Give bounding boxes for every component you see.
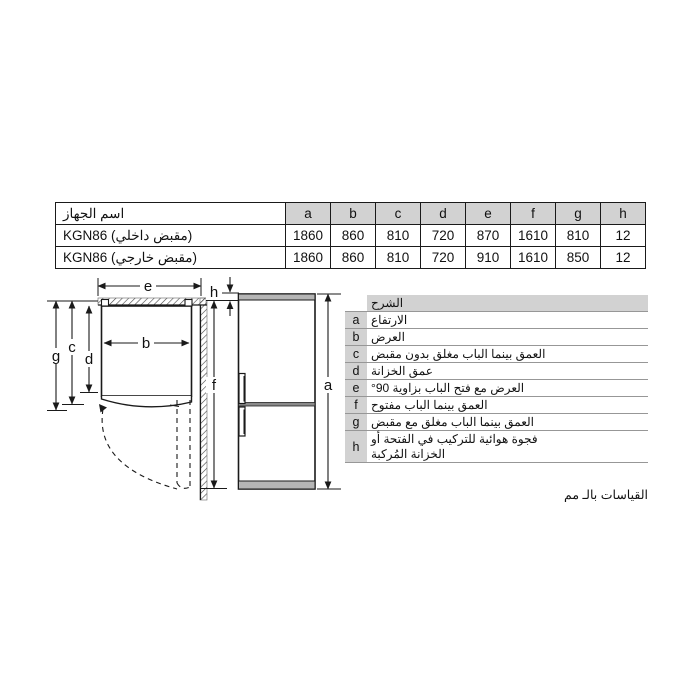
col-header-a: a [286, 203, 331, 225]
legend-key: d [345, 363, 367, 379]
legend-description: الارتفاع [367, 312, 648, 328]
dim-h: h [206, 277, 239, 316]
model-name: KGN86 (مقبض داخلي) [56, 225, 286, 247]
spec-value: 850 [556, 247, 601, 269]
fridge-front-view: a [239, 294, 342, 489]
col-header-g: g [556, 203, 601, 225]
col-header-b: b [331, 203, 376, 225]
legend-description: العمق بينما الباب مغلق مع مقبض [367, 414, 648, 430]
spec-value: 860 [331, 225, 376, 247]
device-name-header: اسم الجهاز [56, 203, 286, 225]
spec-value: 1860 [286, 225, 331, 247]
legend-key: g [345, 414, 367, 430]
legend-key: c [345, 346, 367, 362]
legend-key: a [345, 312, 367, 328]
spec-value: 720 [421, 225, 466, 247]
door-open-front [177, 483, 190, 488]
measurements-note: القياسات بالـ مم [564, 487, 648, 502]
spec-value: 810 [556, 225, 601, 247]
dim-label-a: a [324, 377, 333, 394]
list-item: h فجوة هوائية للتركيب في الفتحة أو الخزا… [345, 431, 648, 463]
legend-key: h [345, 431, 367, 462]
fridge-top-band [239, 294, 316, 300]
legend-description: العرض مع فتح الباب بزاوية 90° [367, 380, 648, 396]
legend-key: b [345, 329, 367, 345]
dim-label-d: d [85, 351, 93, 368]
legend-description: العمق بينما الباب مغلق بدون مقبض [367, 346, 648, 362]
legend-description: العرض [367, 329, 648, 345]
legend-key: f [345, 397, 367, 413]
list-item: a الارتفاع [345, 312, 648, 329]
spec-value: 910 [466, 247, 511, 269]
spec-value: 720 [421, 247, 466, 269]
legend-key: e [345, 380, 367, 396]
dim-a: a [317, 294, 341, 489]
spec-value: 810 [376, 247, 421, 269]
fridge-top-view: e g c d [47, 277, 239, 500]
col-header-e: e [466, 203, 511, 225]
list-item: b العرض [345, 329, 648, 346]
door-swing-arc [102, 409, 177, 489]
col-header-f: f [511, 203, 556, 225]
spec-value: 860 [331, 247, 376, 269]
dim-c: c [62, 301, 84, 405]
dim-g: g [47, 301, 67, 411]
legend-header-row: الشرح [345, 295, 648, 312]
dim-label-e: e [144, 278, 152, 295]
legend-description: فجوة هوائية للتركيب في الفتحة أو الخزانة… [367, 431, 648, 462]
spec-table: اسم الجهاز a b c d e f g h KGN86 (مقبض د… [55, 202, 646, 269]
legend-description: عمق الخزانة [367, 363, 648, 379]
dim-label-b: b [142, 335, 150, 352]
list-item: d عمق الخزانة [345, 363, 648, 380]
col-header-c: c [376, 203, 421, 225]
col-header-d: d [421, 203, 466, 225]
list-item: g العمق بينما الباب مغلق مع مقبض [345, 414, 648, 431]
dim-e: e [98, 278, 201, 296]
list-item: e العرض مع فتح الباب بزاوية 90° [345, 380, 648, 397]
legend-description: العمق بينما الباب مفتوح [367, 397, 648, 413]
manual-page: اسم الجهاز a b c d e f g h KGN86 (مقبض د… [0, 0, 700, 699]
spec-value: 1860 [286, 247, 331, 269]
fridge-plinth [239, 481, 316, 489]
dim-label-g: g [52, 348, 60, 365]
dim-d: d [80, 306, 98, 393]
spec-value: 1610 [511, 247, 556, 269]
spec-value: 1610 [511, 225, 556, 247]
dimension-diagram: e g c d [40, 268, 350, 530]
list-item: c العمق بينما الباب مغلق بدون مقبض [345, 346, 648, 363]
spec-value: 810 [376, 225, 421, 247]
dim-label-h: h [210, 284, 218, 301]
door-closed [102, 396, 192, 407]
spec-value: 12 [601, 225, 646, 247]
legend-table: الشرح a الارتفاع b العرض c العمق بينما ا… [345, 295, 648, 463]
wall-spacer-left [102, 300, 109, 307]
model-name: KGN86 (مقبض خارجي) [56, 247, 286, 269]
dim-label-c: c [68, 339, 76, 356]
list-item: f العمق بينما الباب مفتوح [345, 397, 648, 414]
table-row: KGN86 (مقبض داخلي) 1860 860 810 720 870 … [56, 225, 646, 247]
door-divider [239, 403, 316, 407]
legend-key-spacer [345, 295, 367, 311]
spec-header-row: اسم الجهاز a b c d e f g h [56, 203, 646, 225]
spec-value: 12 [601, 247, 646, 269]
col-header-h: h [601, 203, 646, 225]
legend-header: الشرح [367, 295, 648, 311]
table-row: KGN86 (مقبض خارجي) 1860 860 810 720 910 … [56, 247, 646, 269]
spec-value: 870 [466, 225, 511, 247]
wall-spacer-right [185, 300, 192, 307]
fridge-body [239, 294, 316, 489]
